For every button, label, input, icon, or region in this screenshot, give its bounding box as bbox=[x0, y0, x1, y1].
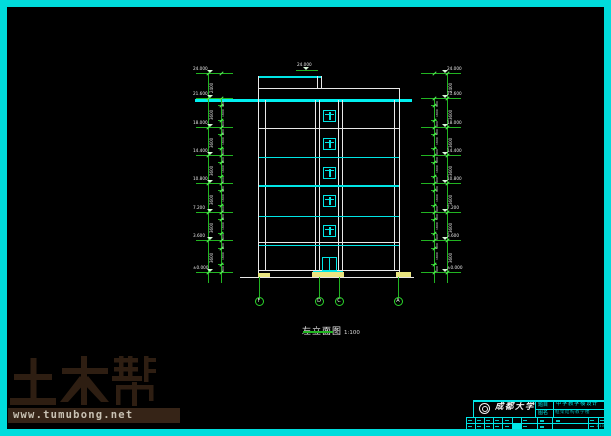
axis-leader-line bbox=[398, 277, 399, 297]
floor-line bbox=[259, 245, 399, 246]
titleblock-field1-label: 题目 bbox=[538, 403, 548, 408]
ground-line bbox=[240, 277, 414, 278]
story-dimension-text: 3600 bbox=[449, 138, 453, 148]
wall-line bbox=[399, 88, 400, 277]
sub-dimension-text: 900 bbox=[222, 215, 225, 221]
axis-leader-line bbox=[319, 277, 320, 297]
elevation-level-text: 7.200 bbox=[193, 206, 205, 210]
window-rail bbox=[325, 142, 334, 143]
elevation-level-text: 24.000 bbox=[447, 67, 462, 71]
sub-dimension-text: 900 bbox=[222, 177, 225, 183]
sub-dimension-text: 900 bbox=[436, 266, 439, 272]
elevation-level-text: 21.600 bbox=[193, 92, 208, 96]
elevation-level-text: 14.400 bbox=[447, 149, 462, 153]
story-dimension-text: 3600 bbox=[449, 253, 453, 263]
sub-dimension-text: 1800 bbox=[436, 222, 439, 230]
window-rail bbox=[325, 114, 334, 115]
elevation-level-text: 7.200 bbox=[447, 206, 459, 210]
story-dimension-text: 2400 bbox=[210, 82, 214, 92]
sub-dimension-text: 900 bbox=[436, 215, 439, 221]
sub-dimension-text: 1800 bbox=[222, 252, 225, 260]
sub-dimension-text: 900 bbox=[436, 149, 439, 155]
titleblock-cell-mark bbox=[556, 420, 560, 422]
wall-line bbox=[317, 76, 318, 88]
drawing-scale-text: 1:100 bbox=[344, 330, 360, 336]
titleblock-school-name: 成都大学 bbox=[495, 403, 535, 412]
titleblock-line bbox=[466, 417, 604, 418]
tumubong-brand-logo bbox=[10, 356, 160, 406]
sub-dimension-text: 1800 bbox=[436, 137, 439, 145]
sub-dimension-text: 900 bbox=[436, 177, 439, 183]
titleblock-line bbox=[473, 400, 604, 402]
story-dimension-text: 3600 bbox=[210, 109, 214, 119]
sub-dimension-text: 1800 bbox=[222, 109, 225, 117]
sub-dimension-text: 900 bbox=[222, 234, 225, 240]
watermark-url-text: www.tumubong.net bbox=[8, 408, 180, 423]
parapet-line bbox=[258, 88, 400, 89]
titleblock-line bbox=[535, 409, 604, 410]
titleblock-line bbox=[466, 423, 604, 424]
window-rail bbox=[325, 199, 334, 200]
titleblock-line bbox=[466, 417, 467, 429]
sub-dimension-text: 900 bbox=[436, 186, 439, 192]
sub-dimension-text: 1800 bbox=[222, 137, 225, 145]
sub-dimension-text: 900 bbox=[222, 149, 225, 155]
elevation-level-text: 24.000 bbox=[297, 63, 312, 67]
sheet-border-top bbox=[0, 0, 611, 7]
titleblock-cell-mark bbox=[468, 420, 472, 422]
story-dimension-text: 3600 bbox=[210, 138, 214, 148]
entry-step bbox=[258, 273, 270, 277]
story-dimension-text: 3600 bbox=[449, 194, 453, 204]
titleblock-cell-mark bbox=[477, 420, 481, 422]
window-rail bbox=[325, 170, 334, 171]
titleblock-field1-value: 中学教学楼设计 bbox=[556, 402, 598, 408]
drawing-title-underline bbox=[303, 331, 333, 333]
story-dimension-text: 3600 bbox=[210, 194, 214, 204]
sheet-border-left bbox=[0, 0, 7, 436]
titleblock-cell-mark bbox=[495, 426, 499, 428]
axis-bubble: D bbox=[315, 297, 324, 306]
elevation-marker-line bbox=[296, 70, 318, 71]
sub-dimension-text: 1800 bbox=[436, 252, 439, 260]
penthouse-roof-line bbox=[259, 76, 322, 78]
university-logo bbox=[479, 403, 490, 414]
axis-leader-line bbox=[339, 277, 340, 297]
sub-dimension-text: 900 bbox=[436, 158, 439, 164]
titleblock-cell-mark bbox=[523, 420, 527, 422]
elevation-level-text: 10.800 bbox=[447, 177, 462, 181]
titleblock-cell-mark bbox=[590, 420, 594, 422]
titleblock-cell-mark bbox=[486, 426, 490, 428]
axis-bubble: C bbox=[335, 297, 344, 306]
sub-dimension-text: 900 bbox=[222, 206, 225, 212]
titleblock-line bbox=[537, 417, 538, 429]
sub-dimension-text: 900 bbox=[222, 266, 225, 272]
axis-bubble: A bbox=[394, 297, 403, 306]
story-dimension-text: 3600 bbox=[449, 109, 453, 119]
titleblock-line bbox=[475, 417, 476, 429]
story-dimension-text: 3600 bbox=[210, 253, 214, 263]
titleblock-cell-mark bbox=[477, 426, 481, 428]
elevation-level-text: 10.800 bbox=[193, 177, 208, 181]
titleblock-cell-mark bbox=[505, 426, 509, 428]
sheet-border-right bbox=[604, 0, 611, 436]
floor-line bbox=[259, 157, 399, 158]
sub-dimension-text: 1800 bbox=[436, 194, 439, 202]
sub-dimension-text: 900 bbox=[222, 243, 225, 249]
titleblock-cell-mark bbox=[495, 420, 499, 422]
story-dimension-text: 3600 bbox=[210, 223, 214, 233]
window-rail bbox=[325, 229, 334, 230]
sub-dimension-text: 1800 bbox=[222, 165, 225, 173]
titleblock-line bbox=[588, 417, 589, 429]
sub-dimension-text: 900 bbox=[436, 130, 439, 136]
story-dimension-text: 3600 bbox=[449, 223, 453, 233]
sub-dimension-text: 900 bbox=[436, 234, 439, 240]
titleblock-field2-value: 框架结构教学楼 bbox=[555, 411, 590, 416]
elevation-level-text: 3.600 bbox=[193, 234, 205, 238]
cad-sheet: 左立面图1:100 FDCA24.00024.00021.60021.60018… bbox=[0, 0, 611, 436]
elevation-level-text: ±0.000 bbox=[193, 266, 209, 270]
sub-dimension-text: 1800 bbox=[222, 194, 225, 202]
titleblock-line bbox=[535, 400, 536, 417]
story-dimension-text: 2400 bbox=[449, 82, 453, 92]
titleblock-cell-mark bbox=[600, 420, 604, 422]
titleblock-line bbox=[553, 400, 554, 417]
elevation-level-text: ±0.000 bbox=[447, 266, 463, 270]
watermark-url-bar: www.tumubong.net bbox=[8, 408, 180, 423]
elevation-level-text: 18.000 bbox=[447, 121, 462, 125]
sub-dimension-text: 1800 bbox=[436, 109, 439, 117]
titleblock-line bbox=[484, 417, 485, 429]
wall-line bbox=[319, 100, 320, 277]
sub-dimension-text: 900 bbox=[436, 121, 439, 127]
floor-line bbox=[259, 185, 399, 187]
sub-dimension-text: 900 bbox=[222, 130, 225, 136]
titleblock-line bbox=[502, 417, 503, 429]
door-mullion bbox=[329, 258, 331, 270]
axis-leader-line bbox=[259, 277, 260, 297]
titleblock-cell-mark bbox=[590, 426, 594, 428]
elevation-level-text: 18.000 bbox=[193, 121, 208, 125]
titleblock-line bbox=[521, 417, 522, 429]
sub-dimension-text: 1800 bbox=[436, 165, 439, 173]
story-dimension-text: 3600 bbox=[449, 166, 453, 176]
wall-line bbox=[338, 100, 339, 277]
titleblock-cell-mark bbox=[505, 420, 509, 422]
floor-line bbox=[259, 216, 399, 217]
sub-dimension-text: 900 bbox=[222, 121, 225, 127]
elevation-level-text: 24.000 bbox=[193, 67, 208, 71]
sub-dimension-text: 900 bbox=[222, 158, 225, 164]
roof-slab-line bbox=[195, 99, 412, 102]
sub-dimension-text: 900 bbox=[222, 186, 225, 192]
titleblock-cell-mark bbox=[540, 420, 544, 422]
drawing-title: 左立面图1:100 bbox=[302, 319, 360, 338]
titleblock-cell-mark bbox=[468, 426, 472, 428]
titleblock-line bbox=[493, 417, 494, 429]
dimension-line bbox=[208, 73, 209, 283]
titleblock-field2-label: 图名 bbox=[538, 411, 548, 416]
floor-line bbox=[259, 242, 399, 243]
titleblock-line bbox=[473, 400, 474, 417]
wall-line bbox=[258, 76, 259, 277]
titleblock-line bbox=[552, 417, 553, 429]
sub-dimension-text: 1800 bbox=[222, 222, 225, 230]
titleblock-cell-mark bbox=[486, 420, 490, 422]
elevation-level-text: 3.600 bbox=[447, 234, 459, 238]
titleblock-cell-mark bbox=[540, 426, 544, 428]
sub-dimension-text: 900 bbox=[222, 101, 225, 107]
sheet-border-bottom bbox=[0, 429, 611, 436]
titleblock-cell-mark bbox=[523, 426, 527, 428]
sub-dimension-text: 900 bbox=[436, 243, 439, 249]
elevation-level-text: 14.400 bbox=[193, 149, 208, 153]
wall-line bbox=[321, 76, 322, 88]
story-dimension-text: 3600 bbox=[210, 166, 214, 176]
floor-line bbox=[259, 128, 399, 129]
titleblock-stamp bbox=[513, 424, 522, 429]
sub-dimension-text: 900 bbox=[436, 101, 439, 107]
axis-bubble: F bbox=[255, 297, 264, 306]
sub-dimension-text: 900 bbox=[436, 206, 439, 212]
